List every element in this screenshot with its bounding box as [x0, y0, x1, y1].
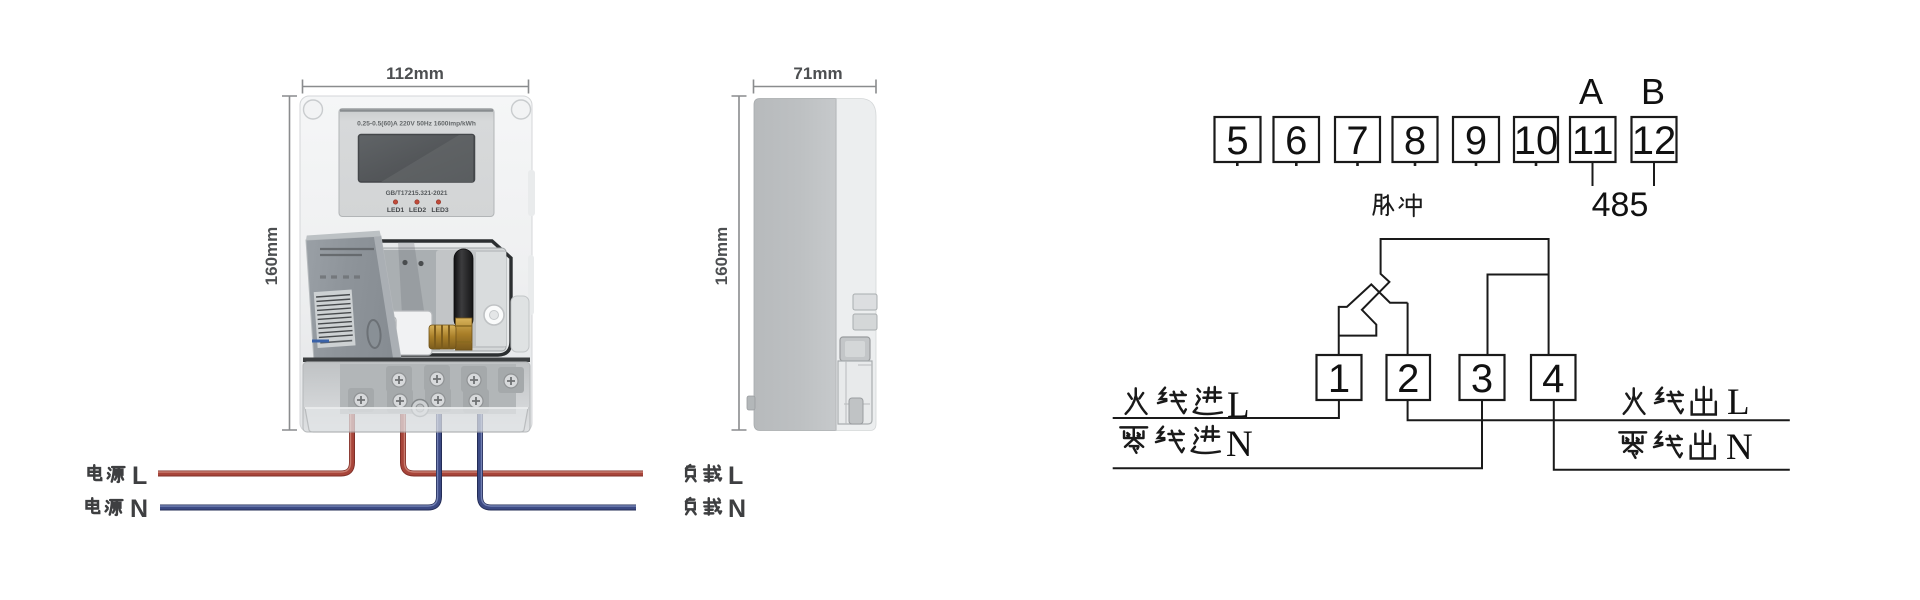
- svg-text:L: L: [728, 462, 743, 490]
- svg-text:L: L: [1727, 382, 1750, 423]
- svg-text:2: 2: [1397, 357, 1419, 401]
- svg-text:6: 6: [1285, 119, 1307, 163]
- svg-text:160mm: 160mm: [712, 227, 731, 286]
- svg-text:N: N: [1726, 427, 1753, 468]
- svg-text:12: 12: [1632, 119, 1677, 163]
- svg-text:11: 11: [1572, 119, 1614, 163]
- svg-text:N: N: [1226, 424, 1253, 465]
- svg-text:485: 485: [1592, 186, 1649, 224]
- svg-text:B: B: [1641, 71, 1665, 112]
- svg-text:3: 3: [1471, 357, 1493, 401]
- svg-text:71mm: 71mm: [793, 64, 842, 83]
- svg-text:0.25-0.5(60)A 220V 50Hz 1600im: 0.25-0.5(60)A 220V 50Hz 1600imp/kWh: [357, 121, 476, 128]
- svg-text:LED1: LED1: [387, 207, 405, 214]
- svg-text:10: 10: [1514, 119, 1559, 163]
- svg-text:A: A: [1579, 71, 1603, 112]
- svg-text:9: 9: [1465, 119, 1487, 163]
- svg-text:L: L: [132, 462, 147, 490]
- svg-text:160mm: 160mm: [262, 227, 281, 286]
- svg-text:LED2: LED2: [409, 207, 427, 214]
- svg-text:4: 4: [1542, 357, 1564, 401]
- svg-text:8: 8: [1404, 119, 1426, 163]
- svg-text:GB/T17215.321-2021: GB/T17215.321-2021: [386, 190, 448, 197]
- svg-text:1: 1: [1328, 357, 1350, 401]
- svg-text:112mm: 112mm: [386, 64, 444, 83]
- svg-text:N: N: [130, 495, 148, 523]
- svg-text:5: 5: [1226, 119, 1248, 163]
- svg-text:L: L: [1227, 385, 1250, 426]
- svg-text:LED3: LED3: [431, 207, 449, 214]
- svg-text:7: 7: [1346, 119, 1368, 163]
- svg-text:N: N: [728, 495, 746, 523]
